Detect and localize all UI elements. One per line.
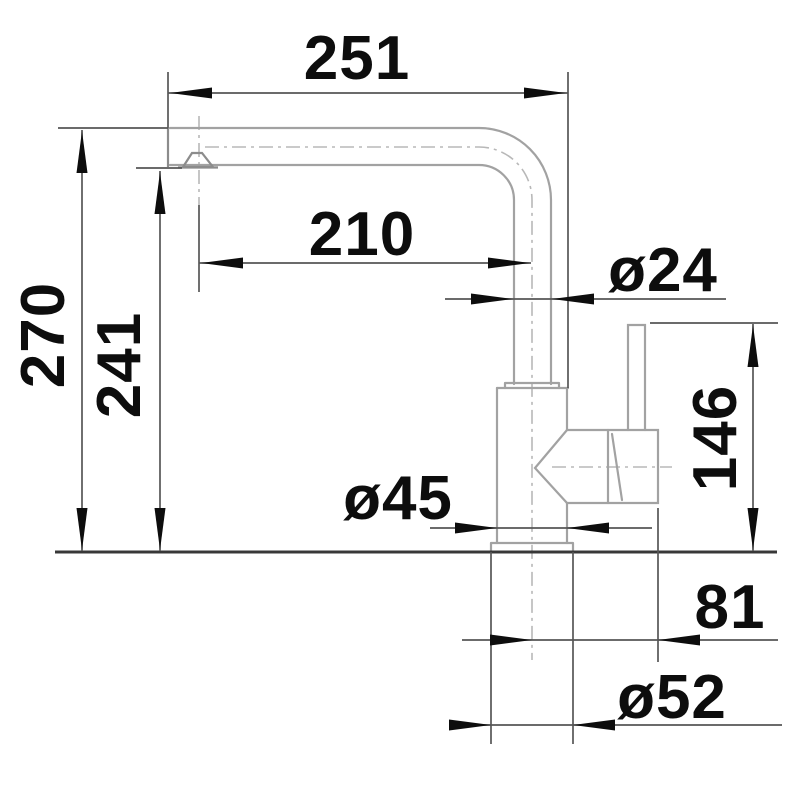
arrow-251-left bbox=[170, 88, 212, 99]
dim-label-52: ø52 bbox=[617, 663, 727, 732]
arrow-270-bottom bbox=[77, 508, 88, 550]
arrow-210-left bbox=[201, 258, 243, 269]
arrow-52-left bbox=[449, 720, 491, 731]
dim-label-270: 270 bbox=[9, 282, 78, 388]
arrow-81-left bbox=[490, 635, 532, 646]
arrow-45-right bbox=[567, 523, 609, 534]
arrow-52-right bbox=[573, 720, 615, 731]
arrow-241-bottom bbox=[155, 508, 166, 550]
arrow-24-right bbox=[552, 294, 594, 305]
centerlines bbox=[199, 116, 672, 660]
dim-label-45: ø45 bbox=[343, 464, 453, 533]
dimension-arrows bbox=[77, 88, 759, 731]
arrow-210-right bbox=[488, 258, 530, 269]
arrow-241-top bbox=[155, 172, 166, 214]
dim-label-24: ø24 bbox=[608, 236, 718, 305]
arrow-45-left bbox=[455, 523, 497, 534]
dim-label-241: 241 bbox=[85, 312, 154, 418]
dim-label-146: 146 bbox=[681, 385, 750, 491]
arrow-146-top bbox=[748, 325, 759, 367]
arrow-146-bottom bbox=[748, 508, 759, 550]
spout-inner-edge bbox=[170, 165, 514, 384]
dimension-lines bbox=[58, 72, 782, 744]
dim-label-251: 251 bbox=[304, 24, 410, 93]
arrow-270-top bbox=[77, 131, 88, 173]
dimension-labels: 251 210 ø24 270 241 146 ø45 81 ø52 bbox=[9, 24, 765, 732]
faucet-dimension-diagram: 251 210 ø24 270 241 146 ø45 81 ø52 bbox=[0, 0, 800, 800]
dim-label-81: 81 bbox=[695, 573, 766, 642]
arrow-251-right bbox=[524, 88, 566, 99]
arrow-24-left bbox=[471, 294, 513, 305]
dim-label-210: 210 bbox=[309, 200, 415, 269]
lever-handle bbox=[628, 325, 645, 430]
technical-drawing-page: 251 210 ø24 270 241 146 ø45 81 ø52 bbox=[0, 0, 800, 800]
